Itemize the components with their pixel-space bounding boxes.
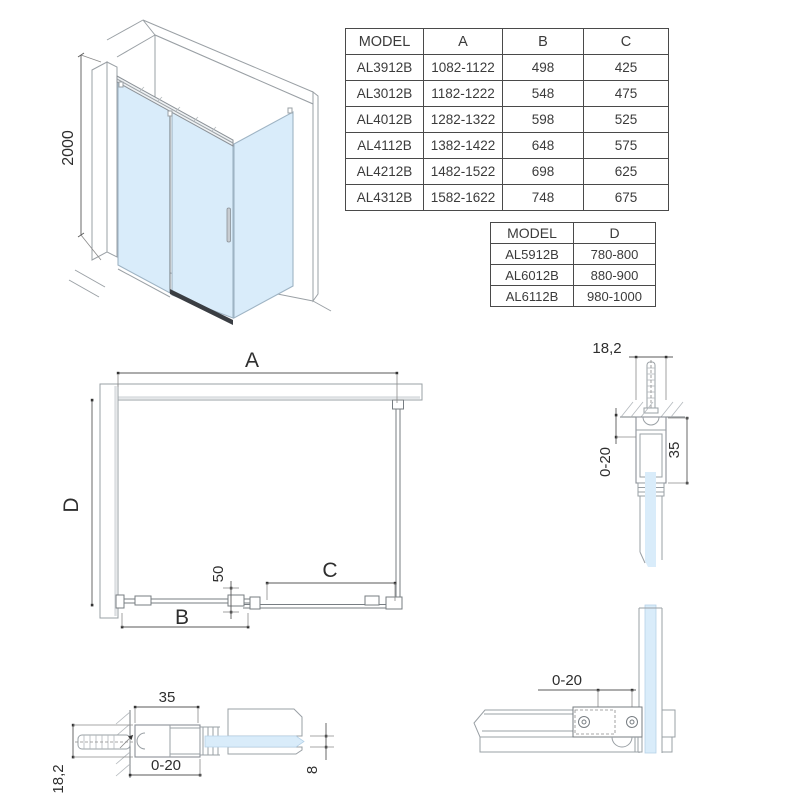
dimension-18-2: 18,2 [50, 724, 133, 794]
detail-corner-connector: 0-20 [460, 590, 710, 800]
table-cell: 1582-1622 [424, 185, 503, 211]
table-cell: AL6012B [491, 265, 574, 286]
table-cell: AL5912B [491, 244, 574, 265]
dimension-d: D [60, 399, 93, 607]
table-cell: AL3912B [346, 55, 424, 81]
table-row: AL4212B1482-1522698625 [346, 159, 669, 185]
dimension-35: 35 [134, 689, 200, 723]
glass-side-panel [234, 112, 293, 318]
wall-anchor-screw [75, 735, 134, 749]
table-cell: 1082-1122 [424, 55, 503, 81]
dimension-8: 8 [304, 723, 334, 774]
table-cell: 625 [584, 159, 669, 185]
door-handle [227, 208, 231, 242]
table-cell: 525 [584, 107, 669, 133]
table-cell: 548 [503, 81, 584, 107]
table-cell: 1282-1322 [424, 107, 503, 133]
dim-0-20-label: 0-20 [151, 757, 181, 774]
column-header: B [503, 29, 584, 55]
column-header: MODEL [491, 223, 574, 244]
table-header-row: MODELABC [346, 29, 669, 55]
plan-side-panel [393, 400, 404, 607]
table-cell: 1382-1422 [424, 133, 503, 159]
table-row: AL5912B780-800 [491, 244, 656, 265]
table-row: AL4012B1282-1322598525 [346, 107, 669, 133]
table-row: AL6012B880-900 [491, 265, 656, 286]
table-cell: 598 [503, 107, 584, 133]
dimension-18-2: 18,2 [592, 340, 673, 400]
size-table: MODELABCAL3912B1082-1122498425AL3012B118… [345, 28, 669, 211]
table-cell: 498 [503, 55, 584, 81]
table-cell: 780-800 [574, 244, 656, 265]
table-cell: 748 [503, 185, 584, 211]
table-cell: 880-900 [574, 265, 656, 286]
table-cell: AL4112B [346, 133, 424, 159]
dim-a-label: A [245, 349, 259, 372]
table-cell: 648 [503, 133, 584, 159]
technical-drawing-sheet: 2000 MODELABCAL3912B1082-1122498425AL301… [0, 0, 800, 800]
dimension-0-20: 0-20 [538, 672, 636, 710]
table-row: AL6112B980-1000 [491, 286, 656, 307]
table-row: AL4312B1582-1622748675 [346, 185, 669, 211]
dimension-b: B [121, 606, 250, 629]
dim-0-20-label: 0-20 [552, 672, 582, 689]
dimension-c: C [266, 559, 397, 601]
table-cell: 675 [584, 185, 669, 211]
wall-anchor-screw [644, 360, 658, 414]
column-header: A [424, 29, 503, 55]
dimension-0-20: 0-20 [129, 757, 202, 777]
dim-d-label: D [60, 497, 83, 512]
plan-view: A D B C [60, 345, 450, 645]
dim-8-label: 8 [304, 766, 321, 774]
dim-0-20-label: 0-20 [597, 447, 614, 477]
plan-track [116, 595, 402, 609]
table-header-row: MODELD [491, 223, 656, 244]
table-row: AL3912B1082-1122498425 [346, 55, 669, 81]
table-cell: 425 [584, 55, 669, 81]
dimension-0-20: 0-20 [597, 408, 636, 477]
dim-b-label: B [175, 606, 189, 629]
dimension-50: 50 [210, 566, 239, 619]
height-dim-label: 2000 [60, 130, 77, 166]
table-cell: 475 [584, 81, 669, 107]
column-header: C [584, 29, 669, 55]
table-cell: AL4212B [346, 159, 424, 185]
table-cell: AL4312B [346, 185, 424, 211]
dim-18-2-label: 18,2 [592, 340, 621, 357]
table-cell: AL4012B [346, 107, 424, 133]
table-cell: 1482-1522 [424, 159, 503, 185]
dim-35-label: 35 [159, 689, 176, 706]
detail-wall-profile-horizontal: 35 [50, 660, 350, 800]
dim-50-label: 50 [210, 566, 227, 583]
table-row: AL3012B1182-1222548475 [346, 81, 669, 107]
table-cell: 698 [503, 159, 584, 185]
detail-wall-profile-vertical: 18,2 [585, 340, 705, 585]
glass-pane [205, 736, 304, 747]
dim-35-label: 35 [666, 442, 683, 459]
column-header: MODEL [346, 29, 424, 55]
left-wall [69, 62, 117, 297]
table-cell: AL6112B [491, 286, 574, 307]
connector-block [573, 707, 642, 737]
column-header: D [574, 223, 656, 244]
table-cell: 1182-1222 [424, 81, 503, 107]
glass-fixed-panel [118, 80, 170, 293]
end-blocks [662, 710, 675, 752]
dim-18-2-label: 18,2 [50, 764, 67, 793]
table-cell: 980-1000 [574, 286, 656, 307]
table-cell: AL3012B [346, 81, 424, 107]
dimension-35: 35 [666, 417, 689, 485]
depth-table: MODELDAL5912B780-800AL6012B880-900AL6112… [490, 222, 656, 307]
isometric-view: 2000 [55, 8, 345, 335]
dim-c-label: C [322, 559, 337, 582]
table-row: AL4112B1382-1422648575 [346, 133, 669, 159]
table-cell: 575 [584, 133, 669, 159]
